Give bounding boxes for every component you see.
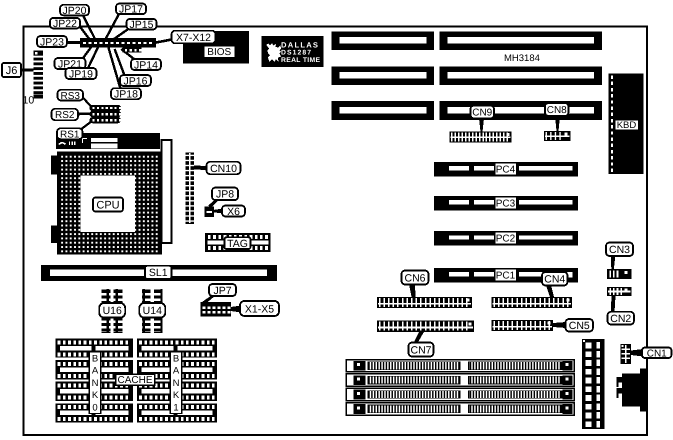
svg-text:1: 1 (173, 402, 178, 413)
svg-text:RS3: RS3 (61, 91, 81, 102)
svg-text:CN4: CN4 (544, 274, 565, 286)
svg-text:U16: U16 (103, 305, 122, 317)
svg-text:JP20: JP20 (63, 5, 87, 17)
svg-text:X1-X5: X1-X5 (245, 303, 274, 315)
svg-text:JP14: JP14 (134, 59, 158, 71)
svg-text:CN3: CN3 (609, 244, 630, 256)
svg-text:JP8: JP8 (216, 189, 234, 201)
svg-text:DS1287: DS1287 (281, 50, 311, 57)
svg-text:K: K (173, 390, 180, 401)
svg-text:X6: X6 (227, 206, 240, 218)
svg-text:CPU: CPU (96, 199, 119, 211)
svg-text:RS2: RS2 (55, 110, 75, 121)
svg-text:REAL TIME: REAL TIME (281, 57, 320, 64)
svg-text:B: B (173, 354, 179, 365)
svg-text:0: 0 (92, 402, 97, 413)
svg-text:KBD: KBD (617, 120, 637, 131)
svg-text:TAG: TAG (227, 238, 248, 250)
svg-text:PC2: PC2 (496, 234, 516, 245)
svg-text:PC3: PC3 (496, 199, 516, 210)
svg-text:10: 10 (23, 95, 35, 107)
svg-text:JP7: JP7 (213, 285, 231, 297)
svg-text:MH3184: MH3184 (504, 53, 540, 64)
svg-text:CN6: CN6 (404, 272, 425, 284)
svg-text:PC4: PC4 (496, 165, 516, 176)
svg-text:BIOS: BIOS (207, 47, 231, 58)
svg-text:JP18: JP18 (114, 88, 138, 100)
svg-text:JP16: JP16 (124, 75, 148, 87)
svg-text:A: A (173, 366, 180, 377)
svg-text:JP23: JP23 (40, 36, 64, 48)
svg-text:U14: U14 (143, 305, 162, 317)
svg-text:PC1: PC1 (496, 271, 516, 282)
svg-text:CN5: CN5 (569, 320, 590, 332)
svg-text:A: A (92, 366, 99, 377)
svg-text:N: N (92, 378, 99, 389)
svg-text:CN2: CN2 (610, 313, 631, 325)
svg-text:JP15: JP15 (130, 19, 154, 31)
svg-text:CN9: CN9 (472, 108, 492, 119)
svg-text:J6: J6 (6, 65, 18, 77)
svg-text:CN10: CN10 (210, 163, 237, 175)
svg-text:N: N (173, 378, 180, 389)
svg-text:JP19: JP19 (69, 68, 93, 80)
svg-text:CN8: CN8 (547, 105, 567, 116)
svg-text:CACHE: CACHE (117, 375, 152, 386)
svg-text:B: B (92, 354, 98, 365)
svg-text:JP17: JP17 (119, 4, 143, 16)
svg-text:JP22: JP22 (53, 18, 77, 30)
svg-text:SL1: SL1 (149, 267, 168, 279)
svg-text:CN7: CN7 (410, 344, 431, 356)
svg-text:X7-X12: X7-X12 (176, 32, 211, 44)
svg-text:CN1: CN1 (647, 348, 667, 359)
svg-text:RS1: RS1 (60, 129, 80, 140)
svg-text:K: K (92, 390, 99, 401)
